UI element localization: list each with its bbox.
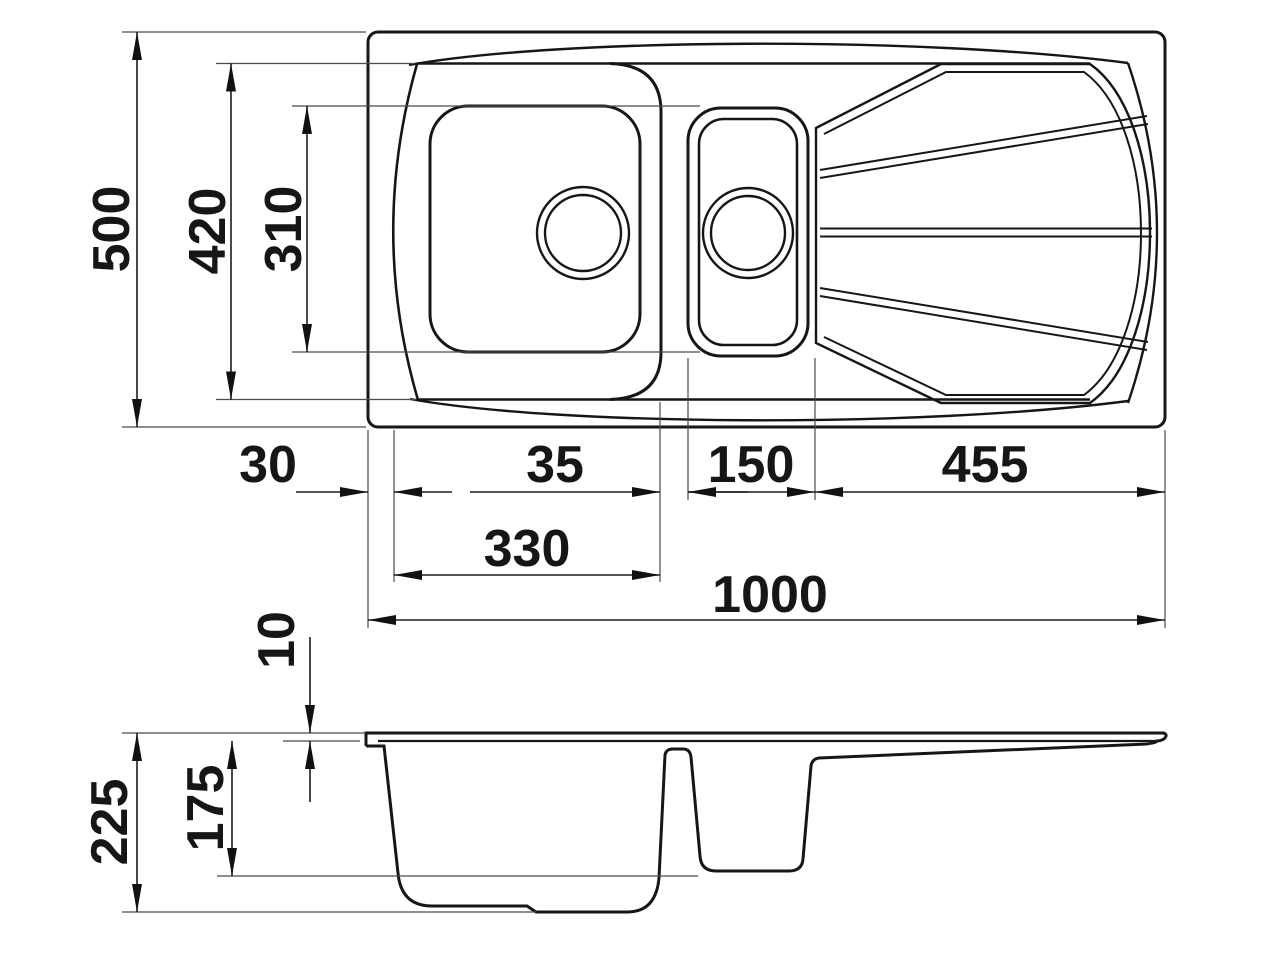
dim-label-small-bowl-width: 150	[708, 436, 795, 494]
drainer-outline	[816, 64, 1150, 403]
arrow-455-right	[1137, 487, 1165, 497]
groove-upper-line-2	[820, 124, 1148, 178]
arrow-310-up	[302, 106, 312, 134]
arrow-10-down	[305, 705, 315, 733]
dim-label-rim-height: 10	[248, 611, 306, 669]
arrow-35-right	[632, 487, 660, 497]
recess-right-arc	[1128, 63, 1157, 403]
dim-label-bowl-gap: 35	[526, 436, 584, 494]
arrow-30-left	[394, 487, 422, 497]
dim-label-overall-depth: 500	[83, 186, 141, 273]
section-view	[366, 733, 1166, 912]
arrow-225-up	[132, 733, 142, 761]
arrow-1000-left	[368, 615, 396, 625]
drainer-inner-outline	[824, 72, 1141, 395]
sink-technical-drawing: 500 420 310 30 35 150 455 330 1000 10 17…	[0, 0, 1280, 960]
arrow-310-down	[302, 324, 312, 352]
groove-lower-line-1	[820, 288, 1148, 342]
main-bowl-inner	[430, 106, 640, 352]
arrow-420-up	[226, 64, 236, 92]
drawing-svg: 500 420 310 30 35 150 455 330 1000 10 17…	[0, 0, 1280, 960]
dim-label-drainer-width: 455	[942, 436, 1029, 494]
arrow-30-right	[340, 487, 368, 497]
groove-lower-line-2	[820, 296, 1147, 350]
dimension-labels: 500 420 310 30 35 150 455 330 1000 10 17…	[81, 186, 1028, 866]
small-bowl-inner	[699, 119, 797, 345]
arrow-10-up	[305, 741, 315, 769]
arrow-330-right	[632, 570, 660, 580]
section-top-surface	[366, 733, 1166, 746]
dim-label-overall-width: 1000	[712, 566, 828, 624]
plan-view	[368, 32, 1165, 427]
arrow-225-down	[132, 884, 142, 912]
groove-upper-line-1	[820, 116, 1147, 170]
arrow-500-up	[132, 32, 142, 60]
dim-label-left-offset: 30	[239, 436, 297, 494]
dim-label-bowl-inner-depth: 310	[255, 186, 313, 273]
small-drain-outer-circle	[703, 188, 793, 278]
section-bowl-profile	[366, 741, 1157, 912]
dim-label-main-bowl-width: 330	[484, 520, 571, 578]
small-bowl-outer	[688, 108, 808, 356]
dim-label-recess-depth: 420	[179, 188, 237, 275]
dimensions: 500 420 310 30 35 150 455 330 1000 10 17…	[81, 32, 1165, 912]
arrow-500-down	[132, 399, 142, 427]
main-drain-inner-circle	[545, 195, 621, 271]
drainer-grooves	[820, 116, 1152, 350]
arrow-455-left	[815, 487, 843, 497]
main-drain-outer-circle	[537, 187, 629, 279]
dim-label-overall-height: 225	[81, 779, 139, 866]
arrow-330-left	[394, 570, 422, 580]
recess-left-curve	[393, 64, 418, 400]
arrow-420-down	[226, 372, 236, 400]
dim-label-small-bowl-depth: 175	[177, 765, 235, 852]
arrow-1000-right	[1137, 615, 1165, 625]
small-drain-inner-circle	[711, 196, 785, 270]
rim-top-sweep-curve	[409, 44, 1128, 65]
